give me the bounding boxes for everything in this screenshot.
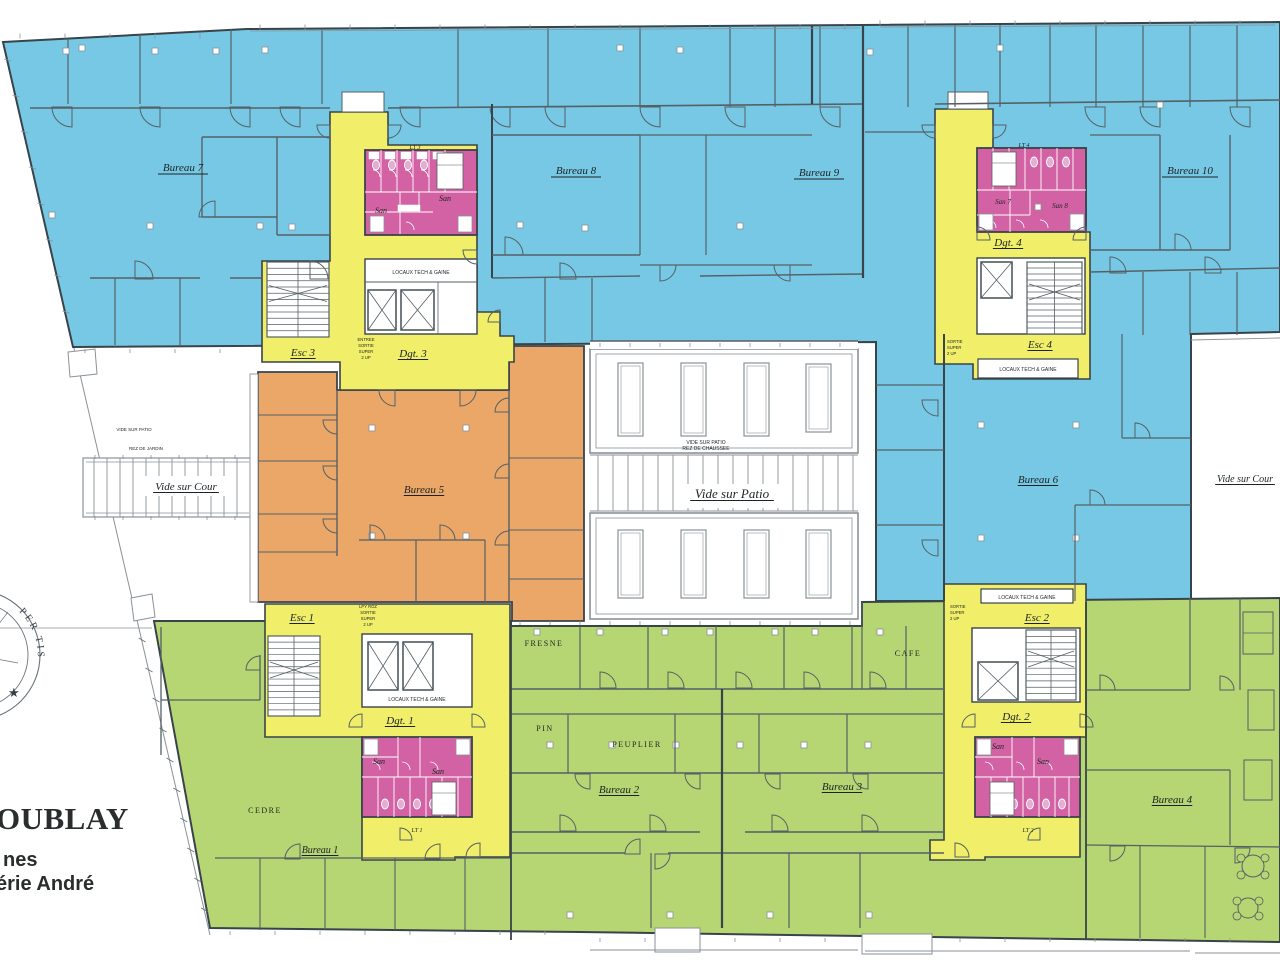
svg-text:San: San: [373, 757, 385, 766]
svg-text:Esc 1: Esc 1: [289, 612, 314, 624]
svg-text:PEUPLIER: PEUPLIER: [612, 740, 661, 749]
svg-text:Bureau 5: Bureau 5: [404, 484, 445, 496]
svg-text:Bureau 1: Bureau 1: [302, 845, 339, 856]
svg-text:Esc 2: Esc 2: [1024, 612, 1050, 624]
svg-text:Dgt. 4: Dgt. 4: [993, 237, 1022, 249]
svg-text:Bureau 8: Bureau 8: [556, 165, 597, 177]
svg-text:San: San: [992, 742, 1004, 751]
svg-text:OUBLAY: OUBLAY: [0, 801, 129, 836]
svg-text:Bureau 10: Bureau 10: [1167, 165, 1213, 177]
svg-text:PER TIS: PER TIS: [17, 606, 46, 660]
svg-text:SORTIE: SORTIE: [947, 339, 963, 344]
svg-text:érie André: érie André: [0, 873, 94, 895]
svg-text:Dgt. 3: Dgt. 3: [398, 348, 427, 360]
svg-text:Bureau 9: Bureau 9: [799, 167, 840, 179]
svg-text:LOCAUX TECH & GAINE: LOCAUX TECH & GAINE: [998, 595, 1056, 601]
svg-text:San: San: [1037, 757, 1049, 766]
svg-text:San: San: [432, 767, 444, 776]
svg-text:Bureau 6: Bureau 6: [1018, 474, 1059, 486]
svg-text:2 UP: 2 UP: [950, 616, 960, 621]
svg-text:SUPER: SUPER: [950, 610, 964, 615]
svg-text:★: ★: [8, 685, 20, 700]
svg-text:LT 3: LT 3: [409, 145, 421, 151]
svg-text:Bureau 3: Bureau 3: [822, 781, 863, 793]
svg-text:CEDRE: CEDRE: [248, 806, 282, 815]
svg-text:SUPER: SUPER: [947, 345, 961, 350]
svg-text:2 UP: 2 UP: [361, 355, 371, 360]
svg-text:SORTIE: SORTIE: [950, 604, 966, 609]
svg-text:San 7: San 7: [995, 198, 1011, 206]
svg-text:PIN: PIN: [536, 724, 553, 733]
svg-text:VIDE SUR PATIO: VIDE SUR PATIO: [116, 427, 152, 432]
svg-text:Vide sur Cour: Vide sur Cour: [1217, 474, 1273, 485]
svg-text:Esc 3: Esc 3: [290, 347, 316, 359]
svg-text:Dgt. 2: Dgt. 2: [1001, 711, 1030, 723]
svg-text:FRESNE: FRESNE: [525, 639, 564, 648]
svg-text:Vide sur Cour: Vide sur Cour: [155, 481, 217, 493]
svg-text:REZ DE CHAUSSEE: REZ DE CHAUSSEE: [682, 446, 730, 452]
svg-text:SORTIE: SORTIE: [358, 343, 374, 348]
svg-text:ENTREE: ENTREE: [358, 337, 375, 342]
svg-text:2 UP: 2 UP: [947, 351, 957, 356]
svg-text:Dgt. 1: Dgt. 1: [385, 715, 414, 727]
svg-text:San: San: [375, 206, 387, 215]
svg-text:LT 1: LT 1: [411, 828, 423, 834]
svg-text:nes: nes: [3, 849, 37, 871]
svg-text:CAFE: CAFE: [895, 649, 921, 658]
svg-text:REZ DE JARDIN: REZ DE JARDIN: [129, 446, 163, 451]
svg-text:LOCAUX TECH & GAINE: LOCAUX TECH & GAINE: [392, 270, 450, 276]
svg-text:Bureau 7: Bureau 7: [163, 162, 204, 174]
svg-text:Bureau 4: Bureau 4: [1152, 794, 1193, 806]
svg-text:LOCAUX TECH & GAINE: LOCAUX TECH & GAINE: [388, 697, 446, 703]
svg-text:San 8: San 8: [1052, 202, 1068, 210]
svg-text:San: San: [439, 194, 451, 203]
svg-text:SUPER: SUPER: [361, 616, 375, 621]
svg-text:SUPER: SUPER: [359, 349, 373, 354]
svg-text:SORTIE: SORTIE: [360, 610, 376, 615]
svg-text:Esc 4: Esc 4: [1027, 339, 1053, 351]
svg-text:LT 4: LT 4: [1018, 142, 1030, 149]
svg-text:Bureau 2: Bureau 2: [599, 784, 640, 796]
svg-text:LPY ROZ: LPY ROZ: [359, 604, 377, 609]
svg-text:Vide sur Patio: Vide sur Patio: [695, 486, 770, 501]
svg-text:LOCAUX TECH & GAINE: LOCAUX TECH & GAINE: [999, 367, 1057, 373]
svg-text:2 UP: 2 UP: [363, 622, 373, 627]
